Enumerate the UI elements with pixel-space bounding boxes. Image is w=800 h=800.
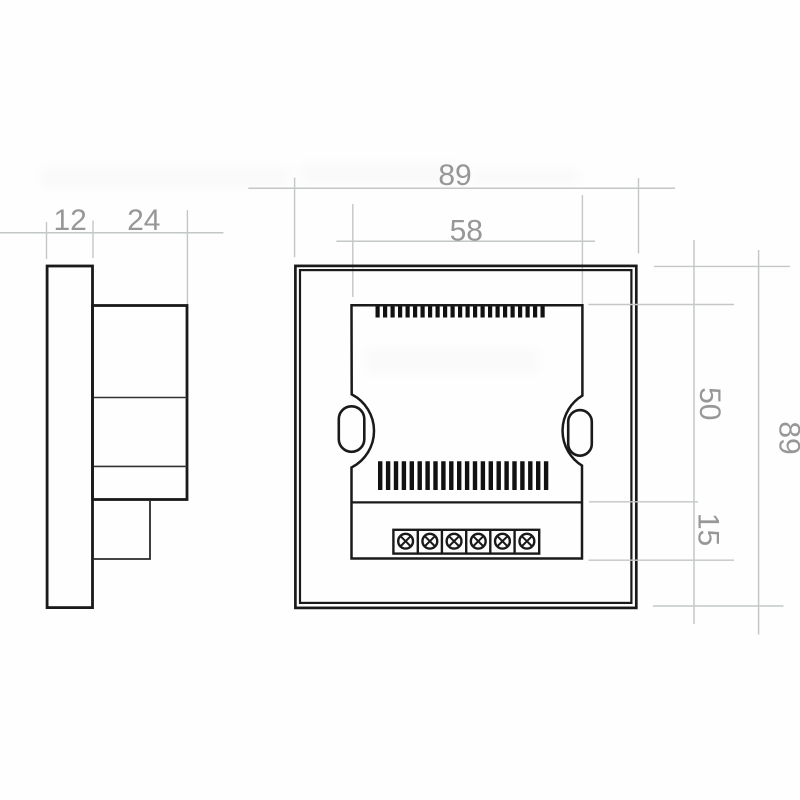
- svg-text:89: 89: [773, 421, 800, 454]
- svg-text:58: 58: [450, 215, 483, 248]
- svg-text:15: 15: [692, 513, 725, 546]
- svg-text:24: 24: [127, 204, 160, 237]
- svg-text:12: 12: [54, 204, 87, 237]
- svg-text:89: 89: [438, 159, 471, 192]
- svg-text:50: 50: [693, 387, 726, 420]
